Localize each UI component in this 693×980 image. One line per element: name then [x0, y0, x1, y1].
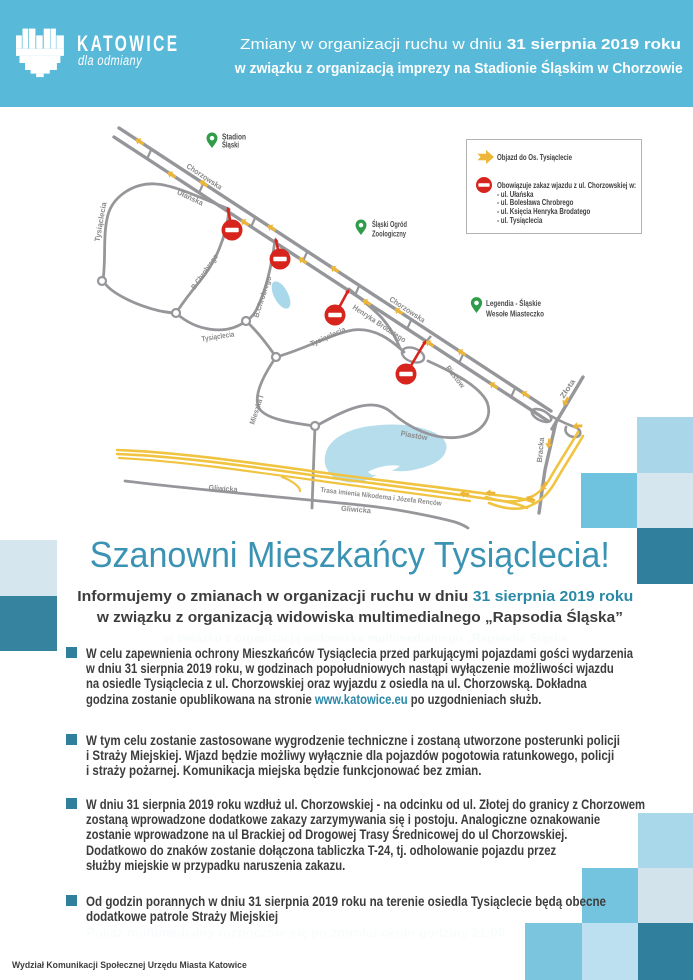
svg-text:Tysiąclecia: Tysiąclecia — [201, 329, 236, 343]
svg-text:Śląski Ogród: Śląski Ogród — [372, 220, 407, 229]
svg-text:Bracka: Bracka — [535, 436, 546, 462]
svg-text:Wesołe Miasteczko: Wesołe Miasteczko — [486, 310, 544, 319]
svg-text:B.Chrobrego: B.Chrobrego — [189, 252, 220, 291]
svg-text:Legendia - Śląskie: Legendia - Śląskie — [486, 299, 542, 308]
svg-text:Zoologiczny: Zoologiczny — [372, 230, 406, 239]
svg-text:Tysiąclecia: Tysiąclecia — [309, 324, 348, 348]
svg-text:Gliwicka: Gliwicka — [208, 483, 238, 494]
svg-text:Mieszka I: Mieszka I — [248, 394, 266, 425]
svg-text:B.Chrobrego: B.Chrobrego — [252, 275, 274, 319]
svg-text:Gliwicka: Gliwicka — [341, 504, 373, 516]
svg-text:Śląski: Śląski — [222, 141, 239, 150]
